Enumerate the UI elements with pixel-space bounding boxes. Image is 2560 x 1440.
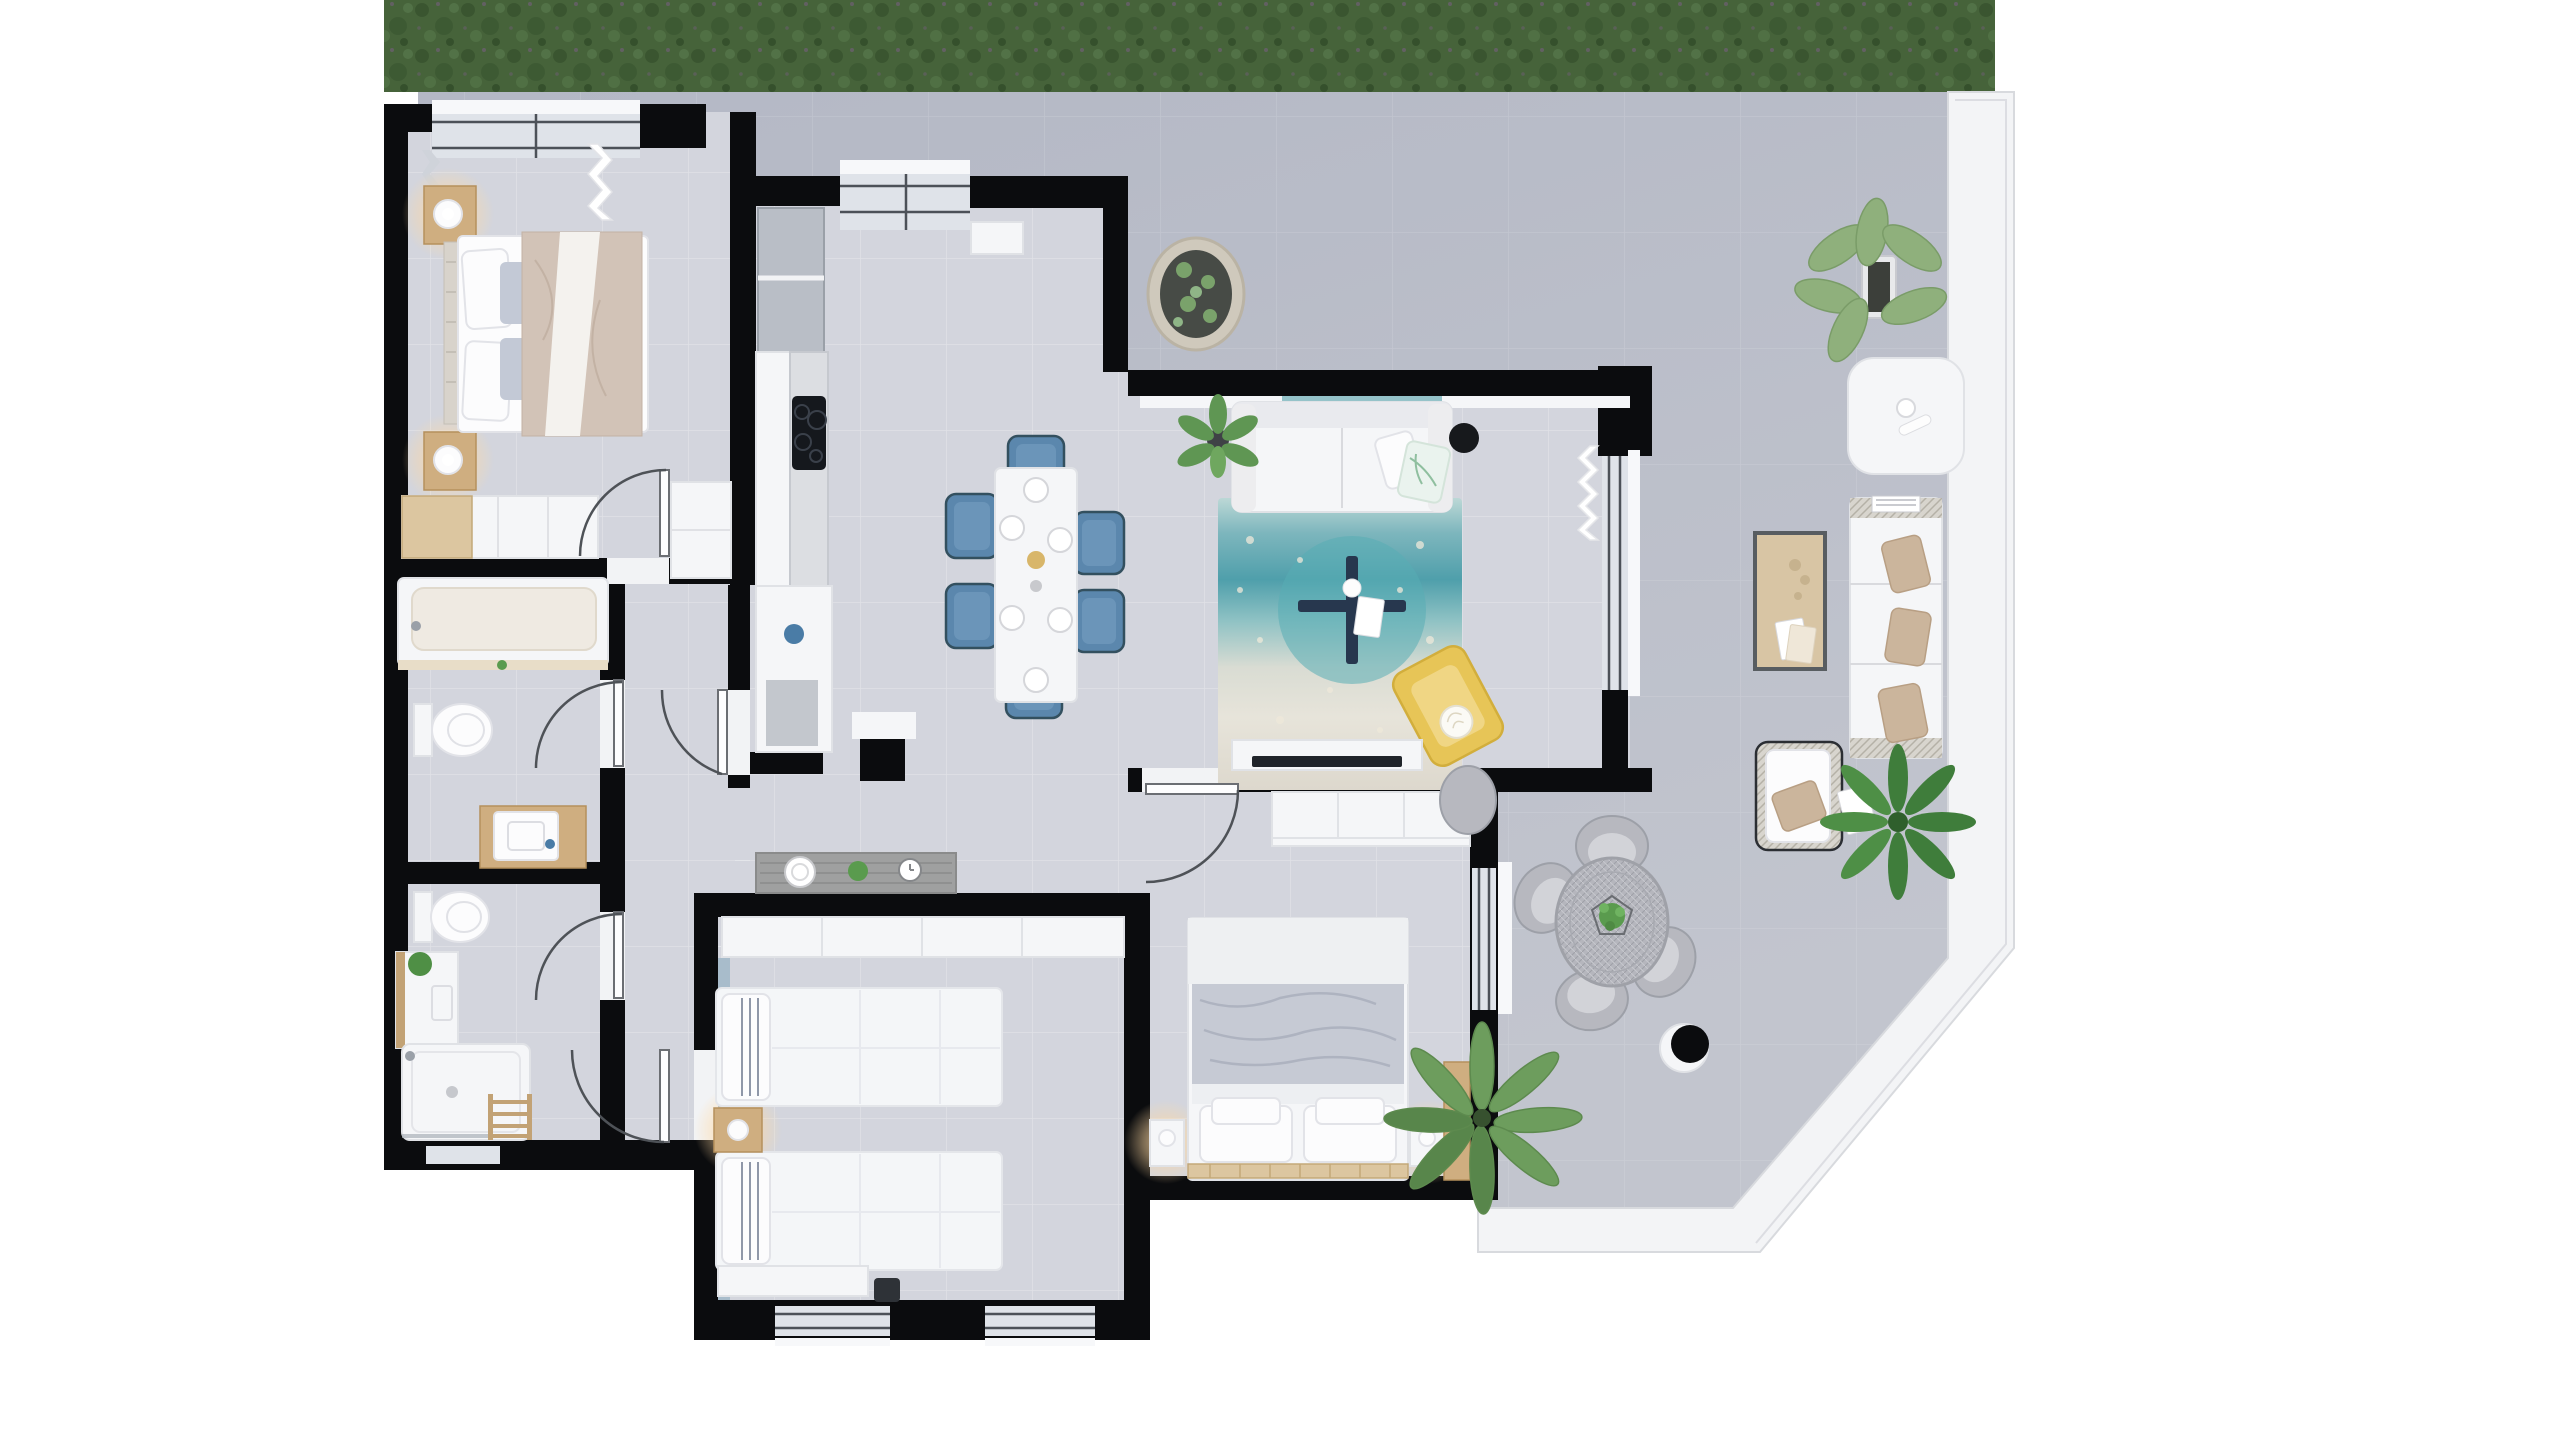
decor-plant (848, 861, 868, 881)
bathroom-1-door (614, 680, 623, 766)
lamp-left (1159, 1130, 1175, 1146)
blue-vase (784, 624, 804, 644)
floor-plan (0, 0, 2560, 1440)
twin-chair (874, 1278, 900, 1302)
column-cap (852, 712, 916, 739)
floor-lamp (1449, 423, 1479, 453)
vanity-plant (408, 952, 432, 976)
tall-cabinet (756, 352, 790, 586)
cylinder-stool (1660, 1024, 1709, 1072)
shower-drain (446, 1086, 458, 1098)
shower-head (405, 1051, 415, 1061)
wall-twin-top (694, 893, 1124, 917)
vanity-2 (396, 952, 458, 1048)
oval-stone-planter (1148, 238, 1244, 350)
toilet-1 (414, 704, 492, 756)
kitchen-window (840, 160, 970, 230)
outdoor-armchair (1756, 742, 1842, 850)
tub-faucet (411, 621, 421, 631)
striped-pillow-1 (722, 994, 770, 1100)
outdoor-pillow-2 (1884, 607, 1932, 667)
decor-plate (785, 857, 815, 887)
toilet-2 (414, 892, 489, 942)
kitchen-top-cabinet (971, 222, 1023, 254)
grass-strip (384, 0, 1995, 92)
tv-console (1232, 740, 1422, 770)
headboard-slats (1188, 1164, 1408, 1178)
sideboard (756, 853, 956, 893)
table-bowl (1030, 580, 1042, 592)
bottle (1897, 399, 1915, 417)
bathroom-2-door (614, 912, 623, 998)
table-paper (1353, 596, 1384, 637)
structural-column (860, 737, 905, 781)
candle-gold (1027, 551, 1045, 569)
table-disc (1343, 579, 1361, 597)
wall-corner-block (1598, 366, 1652, 456)
double-bed (1188, 918, 1408, 1180)
sofa-notebook (1872, 496, 1920, 512)
soap-bottle (545, 839, 555, 849)
master-bedroom-door (660, 470, 669, 556)
white-side-table (1848, 358, 1964, 474)
vanity-1 (480, 806, 586, 868)
twin-lamp (728, 1120, 748, 1140)
wood-coffee-table (1755, 533, 1825, 669)
single-bed-1 (716, 988, 1002, 1106)
double-bedroom-glass-door (1472, 862, 1512, 1014)
bathroom-vent-window (426, 1146, 500, 1164)
wall-living-top (1128, 370, 1652, 396)
headboard (444, 242, 458, 424)
magazine-2 (1786, 624, 1817, 663)
twin-bedroom-door (660, 1050, 669, 1142)
single-bed-2 (716, 1152, 1002, 1270)
wicker-pouf (1440, 766, 1496, 834)
wall-bedroom-right (730, 112, 756, 585)
tv (1252, 756, 1402, 767)
hallway-door (718, 690, 727, 774)
cabinet-niche (766, 680, 818, 746)
double-bedroom-door (1146, 784, 1238, 794)
wall-bathroom-bottom (384, 1140, 625, 1170)
striped-pillow-2 (722, 1158, 770, 1264)
sink-1 (494, 812, 558, 860)
outdoor-sofa (1850, 498, 1942, 758)
fern-plant (1820, 744, 1976, 900)
sofa (1232, 402, 1452, 512)
twin-desk (718, 1266, 868, 1296)
floor-plan-canvas (0, 0, 2560, 1440)
